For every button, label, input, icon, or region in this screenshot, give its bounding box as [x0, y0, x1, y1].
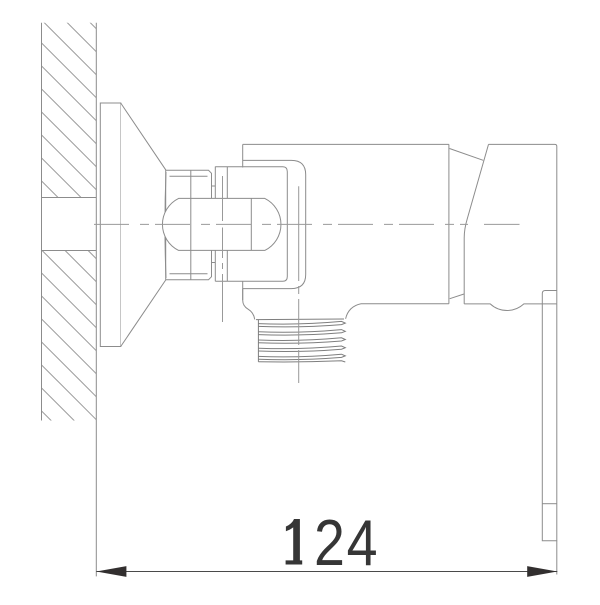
svg-text:2: 2: [314, 506, 345, 579]
svg-text:4: 4: [347, 506, 378, 579]
